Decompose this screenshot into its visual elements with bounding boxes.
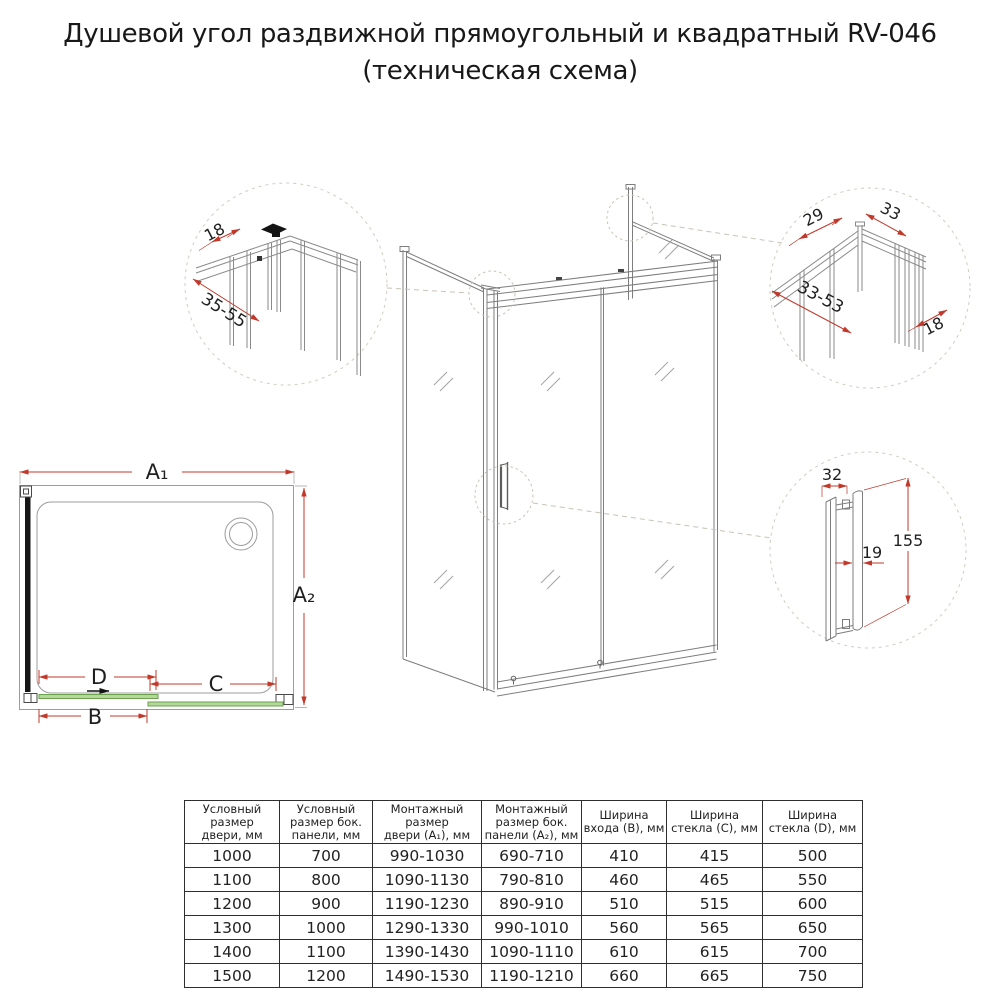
cell: 690-710 <box>482 844 582 868</box>
col-header-panel-mount: Монтажный размер бок. панели (А₂), мм <box>482 801 582 844</box>
cell: 1100 <box>185 868 280 892</box>
cell: 1100 <box>280 940 373 964</box>
cell: 650 <box>763 916 863 940</box>
col-header-entry-width: Ширина входа (В), мм <box>582 801 667 844</box>
dim-label-18-right: 18 <box>920 313 947 339</box>
fixed-glass-plan <box>148 702 283 706</box>
dim-label-d: D <box>91 665 107 689</box>
glass-reflections <box>434 240 678 589</box>
cell: 1000 <box>280 916 373 940</box>
dim-label-b: B <box>88 705 102 729</box>
cell: 500 <box>763 844 863 868</box>
col-header-door-nominal: Условный размер двери, мм <box>185 801 280 844</box>
table-row: 1200 900 1190-1230 890-910 510 515 600 <box>185 892 863 916</box>
cell: 465 <box>667 868 763 892</box>
dim-label-18-left: 18 <box>201 219 228 245</box>
cell: 990-1010 <box>482 916 582 940</box>
col-header-glass-c: Ширина стекла (С), мм <box>667 801 763 844</box>
table-row: 1500 1200 1490-1530 1190-1210 660 665 75… <box>185 964 863 988</box>
table-row: 1000 700 990-1030 690-710 410 415 500 <box>185 844 863 868</box>
leader-to-handle-detail <box>533 503 771 538</box>
table-row: 1400 1100 1390-1430 1090-1110 610 615 70… <box>185 940 863 964</box>
table-row: 1300 1000 1290-1330 990-1010 560 565 650 <box>185 916 863 940</box>
cell: 660 <box>582 964 667 988</box>
dim-label-155: 155 <box>893 531 924 550</box>
detail-circle-top-right: 29 33 33-53 18 <box>770 188 970 388</box>
col-header-door-mount: Монтажный размер двери (А₁), мм <box>373 801 482 844</box>
cell: 460 <box>582 868 667 892</box>
leader-to-left-detail <box>387 288 469 293</box>
cell: 665 <box>667 964 763 988</box>
dim-label-33-53: 33-53 <box>794 277 847 318</box>
cell: 1290-1330 <box>373 916 482 940</box>
cell: 600 <box>763 892 863 916</box>
iso-view <box>387 185 782 697</box>
cell: 515 <box>667 892 763 916</box>
cell: 560 <box>582 916 667 940</box>
door-handle <box>501 462 508 510</box>
cell: 1000 <box>185 844 280 868</box>
cell: 415 <box>667 844 763 868</box>
cell: 800 <box>280 868 373 892</box>
cell: 790-810 <box>482 868 582 892</box>
cell: 1500 <box>185 964 280 988</box>
callout-wall-profile <box>607 195 653 241</box>
door-glass-plan <box>39 695 158 699</box>
cell: 510 <box>582 892 667 916</box>
dim-label-35-55: 35-55 <box>197 289 249 332</box>
cell: 1300 <box>185 916 280 940</box>
cell: 610 <box>582 940 667 964</box>
cell: 1400 <box>185 940 280 964</box>
cell: 1190-1210 <box>482 964 582 988</box>
cell: 890-910 <box>482 892 582 916</box>
col-header-glass-d: Ширина стекла (D), мм <box>763 801 863 844</box>
detail-circle-handle: 32 19 155 <box>770 452 966 648</box>
cell: 565 <box>667 916 763 940</box>
cell: 700 <box>763 940 863 964</box>
dim-label-a2: A₂ <box>293 583 316 607</box>
dim-label-32: 32 <box>822 465 842 484</box>
detail-circle-top-left: 18 35-55 <box>185 183 387 385</box>
table-header-row: Условный размер двери, мм Условный разме… <box>185 801 863 844</box>
cell: 1090-1130 <box>373 868 482 892</box>
cell: 550 <box>763 868 863 892</box>
cell: 900 <box>280 892 373 916</box>
dim-label-33: 33 <box>877 198 904 224</box>
col-header-panel-nominal: Условный размер бок. панели, мм <box>280 801 373 844</box>
cell: 410 <box>582 844 667 868</box>
cell: 1190-1230 <box>373 892 482 916</box>
cell: 1200 <box>185 892 280 916</box>
cell: 750 <box>763 964 863 988</box>
dim-label-29: 29 <box>800 204 827 230</box>
cell: 1090-1110 <box>482 940 582 964</box>
dim-label-c: C <box>209 672 224 696</box>
dim-label-19: 19 <box>862 543 882 562</box>
plan-view: A₁ A₂ D C B <box>20 460 316 729</box>
plan-dimensions <box>20 472 304 723</box>
cell: 700 <box>280 844 373 868</box>
cell: 1200 <box>280 964 373 988</box>
table-row: 1100 800 1090-1130 790-810 460 465 550 <box>185 868 863 892</box>
size-table: Условный размер двери, мм Условный разме… <box>184 800 863 988</box>
cell: 990-1030 <box>373 844 482 868</box>
cell: 615 <box>667 940 763 964</box>
cell: 1490-1530 <box>373 964 482 988</box>
dim-label-a1: A₁ <box>146 460 169 484</box>
side-glass-section <box>25 492 31 692</box>
cell: 1390-1430 <box>373 940 482 964</box>
page: Душевой угол раздвижной прямоугольный и … <box>0 0 1000 1000</box>
